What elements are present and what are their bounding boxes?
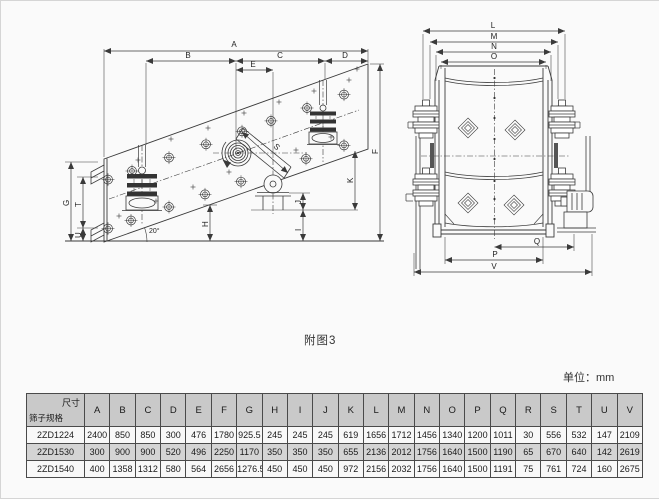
value-cell: 1456 [414,427,439,444]
value-cell: 1780 [211,427,236,444]
model-cell: 2ZD1224 [27,427,85,444]
value-cell: 400 [85,461,110,478]
mesh-symbols [458,118,525,215]
dim-label-q: Q [534,237,540,246]
corner-cell: 尺寸 筛子规格 [27,394,85,427]
col-header: P [465,394,490,427]
value-cell: 245 [313,427,338,444]
value-cell: 476 [186,427,211,444]
table-row-2zd1540: 2ZD1540 400 1358 1312 580 564 2656 1276.… [27,461,643,478]
value-cell: 1340 [440,427,465,444]
dim-label-v: V [491,262,497,271]
col-header: E [186,394,211,427]
figure-caption: 附图3 [304,332,336,348]
value-cell: 2156 [363,461,388,478]
value-cell: 1190 [490,444,515,461]
dim-label-i: I [294,229,303,231]
value-cell: 350 [287,444,312,461]
dim-label-a: A [231,40,237,49]
value-cell: 1358 [110,461,135,478]
angle-arc [145,228,148,243]
value-cell: 1312 [135,461,160,478]
value-cell: 1756 [414,461,439,478]
dim-label-l: L [491,21,496,30]
value-cell: 655 [338,444,363,461]
value-cell: 640 [566,444,591,461]
value-cell: 1640 [440,444,465,461]
value-cell: 1500 [465,444,490,461]
model-cell: 2ZD1530 [27,444,85,461]
value-cell: 850 [135,427,160,444]
value-cell: 1276.5 [237,461,262,478]
dim-label-p: P [492,250,497,259]
value-cell: 450 [287,461,312,478]
value-cell: 2400 [85,427,110,444]
col-header: I [287,394,312,427]
dim-label-e: E [250,60,255,69]
dim-label-k: K [346,177,355,183]
page: A B C D E G T U F K H J I S 20° [0,0,659,499]
col-header: U [592,394,617,427]
value-cell: 450 [313,461,338,478]
value-cell: 670 [541,444,566,461]
value-cell: 1170 [237,444,262,461]
technical-drawing: A B C D E G T U F K H J I S 20° [1,1,659,363]
dim-label-n: N [491,42,497,51]
angle-label: 20° [149,227,160,235]
value-cell: 724 [566,461,591,478]
value-cell: 496 [186,444,211,461]
motor-front [557,191,596,232]
col-header: H [262,394,287,427]
value-cell: 580 [161,461,186,478]
col-header: R [516,394,541,427]
motor [255,175,291,210]
value-cell: 556 [541,427,566,444]
unit-label: 单位：mm [563,369,614,385]
col-header: F [211,394,236,427]
value-cell: 564 [186,461,211,478]
value-cell: 2250 [211,444,236,461]
centerlines-front [421,69,569,239]
value-cell: 65 [516,444,541,461]
value-cell: 147 [592,427,617,444]
value-cell: 300 [85,444,110,461]
value-cell: 350 [313,444,338,461]
value-cell: 1756 [414,444,439,461]
value-cell: 245 [287,427,312,444]
spring-assembly-right [307,105,339,145]
col-header: B [110,394,135,427]
value-cell: 1712 [389,427,414,444]
table-row-2zd1530: 2ZD1530 300 900 900 520 496 2250 1170 35… [27,444,643,461]
side-plate-right [554,143,558,168]
col-header: O [440,394,465,427]
value-cell: 142 [592,444,617,461]
col-header: A [85,394,110,427]
value-cell: 520 [161,444,186,461]
value-cell: 2012 [389,444,414,461]
col-header: N [414,394,439,427]
side-plate-left [430,143,434,168]
left-brackets [91,165,104,242]
col-header: L [363,394,388,427]
value-cell: 300 [161,427,186,444]
value-cell: 900 [110,444,135,461]
value-cell: 1191 [490,461,515,478]
table-row-2zd1224: 2ZD1224 2400 850 850 300 476 1780 925.5 … [27,427,643,444]
header-row: 尺寸 筛子规格 A B C D E F G H I J K L M N O P … [27,394,643,427]
rotation-arrow-icon [222,142,231,168]
value-cell: 75 [516,461,541,478]
col-header: T [566,394,591,427]
value-cell: 245 [262,427,287,444]
value-cell: 619 [338,427,363,444]
value-cell: 1500 [465,461,490,478]
value-cell: 925.5 [237,427,262,444]
dimension-lines [71,51,380,241]
dim-label-b: B [185,51,190,60]
col-header: G [237,394,262,427]
value-cell: 1640 [440,461,465,478]
value-cell: 2656 [211,461,236,478]
bearing-assemblies [413,100,575,206]
corner-model-label: 筛子规格 [29,412,63,424]
value-cell: 1011 [490,427,515,444]
value-cell: 1200 [465,427,490,444]
value-cell: 900 [135,444,160,461]
dim-label-u: U [74,232,83,238]
value-cell: 972 [338,461,363,478]
dim-label-h: H [201,221,210,227]
value-cell: 2109 [617,427,642,444]
value-cell: 160 [592,461,617,478]
value-cell: 1656 [363,427,388,444]
col-header: Q [490,394,515,427]
model-cell: 2ZD1540 [27,461,85,478]
dim-label-f: F [371,149,380,154]
front-view: L M N O Q P V [406,21,596,276]
dim-label-g: G [62,200,71,206]
value-cell: 450 [262,461,287,478]
value-cell: 2675 [617,461,642,478]
value-cell: 532 [566,427,591,444]
center-rivets [493,77,495,220]
value-cell: 850 [110,427,135,444]
corner-dimension-label: 尺寸 [62,396,80,409]
dim-label-j: J [294,200,303,204]
extension-lines-front [414,34,592,276]
col-header: S [541,394,566,427]
value-cell: 761 [541,461,566,478]
value-cell: 30 [516,427,541,444]
col-header: M [389,394,414,427]
col-header: J [313,394,338,427]
dim-label-o: O [491,52,497,61]
dim-label-c: C [277,51,283,60]
screen-box [433,66,554,237]
dim-label-d: D [342,51,348,60]
dim-label-t: T [74,202,83,207]
col-header: D [161,394,186,427]
spec-table: 尺寸 筛子规格 A B C D E F G H I J K L M N O P … [26,393,643,478]
col-header: C [135,394,160,427]
col-header: K [338,394,363,427]
value-cell: 350 [262,444,287,461]
value-cell: 2619 [617,444,642,461]
dim-label-m: M [491,32,498,41]
value-cell: 2032 [389,461,414,478]
col-header: V [617,394,642,427]
side-view: A B C D E G T U F K H J I S 20° [62,40,384,242]
value-cell: 2136 [363,444,388,461]
